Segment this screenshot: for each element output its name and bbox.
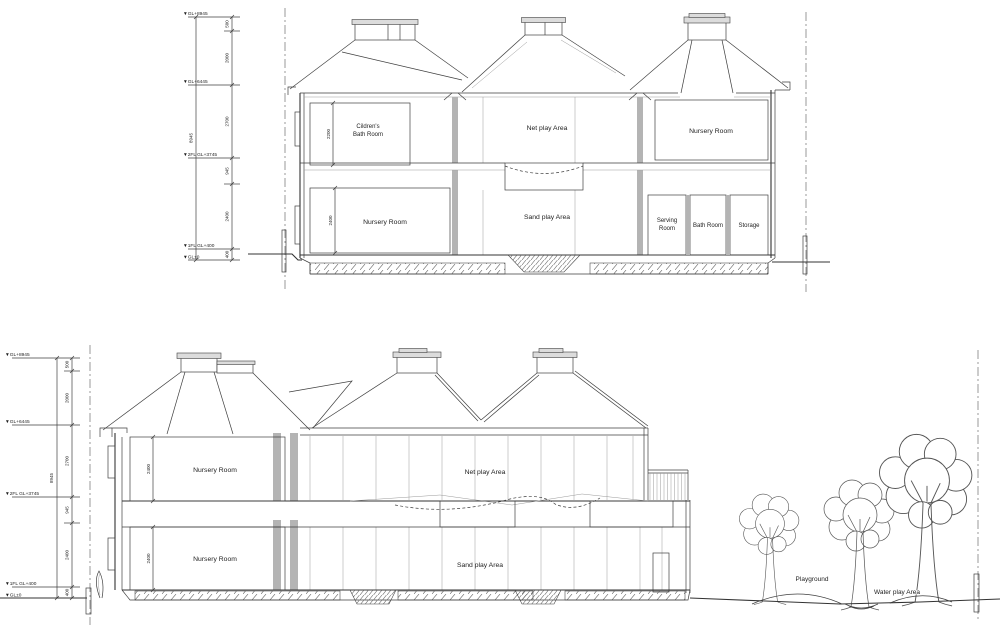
dim-ticks [194,15,234,262]
level-label-gl8945: ▼GL+8945 [183,11,208,17]
ground-line [690,598,1000,604]
dim-total-8945: 8945 [189,132,194,143]
label-serving-line1: Serving [657,218,677,224]
dim-400: 400 [225,250,230,258]
sand-pit-section [508,255,580,272]
dim-total-8945: 8945 [49,472,54,483]
dim-2400: 2400 [225,211,230,222]
label-bathroom: Bath Room [693,223,723,229]
level-label-gl0: ▼GL±0 [183,255,200,261]
label-sand-play: Sand play Area [524,214,570,221]
label-net-play: Net play Area [465,469,506,476]
label-bath-line1: Cildren's [356,124,379,130]
dim-nursery-2400: 2400 [328,215,333,226]
dim-nursery1f-2400: 2400 [146,553,151,564]
label-playground: Playground [796,576,829,583]
label-nursery-2f: Nursery Room [689,128,733,135]
top-section-drawing: ▼GL+8945 ▼GL+6445 ▼2FL GL+3745 ▼1FL GL+4… [183,8,830,292]
label-sand-play: Sand play Area [457,562,503,569]
entry-step [350,590,396,604]
site: Playground Water play Area [0,434,1000,614]
bottom-foundation [122,590,690,604]
dim-2000: 2000 [65,392,70,403]
label-water-play: Water play Area [874,589,920,596]
dim-500: 500 [225,20,230,28]
top-rooms: 2200 2400 Cildren's Bath Room Net play A… [310,100,768,255]
level-label-gl8945: ▼GL+8945 [5,352,30,358]
top-roofs [288,14,790,96]
top-foundation [300,255,775,274]
level-label-gl6445: ▼GL+6445 [5,419,30,425]
label-nursery-1f: Nursery Room [193,556,237,563]
level-label-1fl: ▼1FL GL+400 [183,243,215,249]
dim-nursery2f-2400: 2400 [146,463,151,474]
dim-2700: 2700 [65,455,70,466]
bottom-roofs [100,349,648,438]
dim-945: 945 [225,167,230,175]
dim-500: 500 [65,360,70,368]
level-label-2fl: ▼2FL GL+3745 [183,152,217,158]
bottom-structure [108,428,690,593]
dim-945: 945 [65,506,70,514]
dim-2000: 2000 [225,52,230,63]
net-sag-dashed [505,166,583,174]
level-label-gl6445: ▼GL+6445 [183,79,208,85]
balcony-railing [648,470,688,500]
nursery-section-drawings: ▼GL+8945 ▼GL+6445 ▼2FL GL+3745 ▼1FL GL+4… [0,0,1000,631]
entry-step [515,590,561,604]
top-structure [295,90,775,258]
level-label-1fl: ▼1FL GL+400 [5,581,37,587]
dim-2400: 2400 [65,549,70,560]
label-storage: Storage [738,223,760,229]
dim-2700: 2700 [225,116,230,127]
room-serving-outline [648,195,686,255]
dim-bath-2200: 2200 [326,128,331,139]
architectural-sheet: ▼GL+8945 ▼GL+6445 ▼2FL GL+3745 ▼1FL GL+4… [0,0,1000,631]
label-nursery-2f: Nursery Room [193,467,237,474]
label-bath-line2: Bath Room [353,132,383,138]
tree-small [739,494,799,605]
bottom-dimension-stack: ▼GL+8945 ▼GL+6445 ▼2FL GL+3745 ▼1FL GL+4… [5,352,80,600]
bottom-section-drawing: ▼GL+8945 ▼GL+6445 ▼2FL GL+3745 ▼1FL GL+4… [0,345,1000,625]
label-nursery-1f: Nursery Room [363,219,407,226]
bottom-rooms: 2400 2400 Nursery Room Net play Area Nur… [130,435,506,592]
tree-large [879,434,971,606]
level-label-2fl: ▼2FL GL+3745 [5,491,39,497]
label-serving-line2: Room [659,226,675,232]
label-net-play: Net play Area [527,125,568,132]
dim-400: 400 [65,588,70,596]
top-dimension-stack: ▼GL+8945 ▼GL+6445 ▼2FL GL+3745 ▼1FL GL+4… [183,11,240,262]
